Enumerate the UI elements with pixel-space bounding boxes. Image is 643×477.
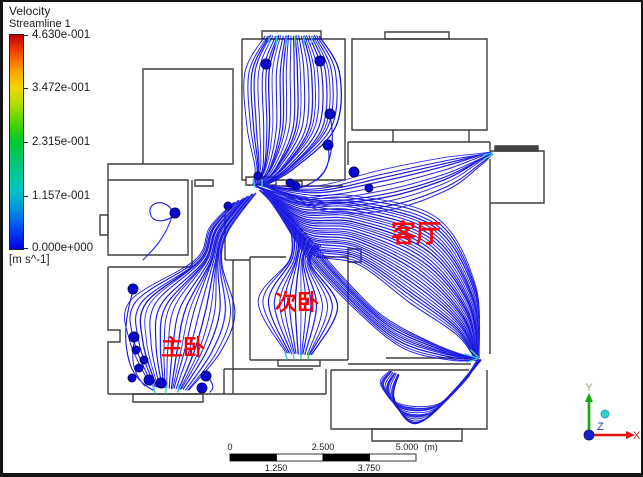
legend-units: [m s^-1] [9,254,129,266]
z-axis-sphere [584,430,594,440]
legend-tick-label: 0.000e+000 [32,242,93,254]
room-label-second-bedroom: 次卧 [275,290,319,315]
scale-segment [230,454,277,461]
scale-unit: (m) [424,442,438,452]
scale-segment [370,454,417,461]
scale-label-mid: 2.500 [312,442,335,452]
y-axis-arrowhead [585,393,593,402]
scale-label-q1: 1.250 [265,463,288,473]
legend-tick-label: 1.157e-001 [32,190,90,202]
velocity-legend: Velocity Streamline 1 4.630e-001 3.472e-… [9,5,129,266]
legend-tick [24,196,28,197]
x-axis-label: X [633,430,641,442]
scale-segment [323,454,370,461]
legend-tick [24,142,28,143]
pivot-sphere [601,410,609,418]
scale-label-0: 0 [227,442,232,452]
legend-colorbar-wrap: 4.630e-001 3.472e-001 2.315e-001 1.157e-… [9,34,129,250]
scale-label-q3: 3.750 [358,463,381,473]
legend-tick-label: 4.630e-001 [32,29,90,41]
legend-tick-label: 2.315e-001 [32,136,90,148]
y-axis-label: Y [585,382,593,394]
z-axis-label: Z [597,421,604,433]
legend-tick [24,248,28,249]
cfd-post-window: Velocity Streamline 1 4.630e-001 3.472e-… [0,0,643,477]
scale-label-end: 5.000 [396,442,419,452]
axis-triad: Z Y X [584,382,641,442]
scale-bar: 0 2.500 5.000 (m) 1.250 3.750 [227,442,437,473]
room-label-master-bedroom: 主卧 [161,335,205,360]
legend-tick [24,35,28,36]
scale-segment [277,454,324,461]
room-label-living: 客厅 [391,219,441,248]
legend-colorbar [9,34,24,250]
legend-title: Velocity [9,5,129,18]
legend-tick-label: 3.472e-001 [32,82,90,94]
legend-tick [24,88,28,89]
